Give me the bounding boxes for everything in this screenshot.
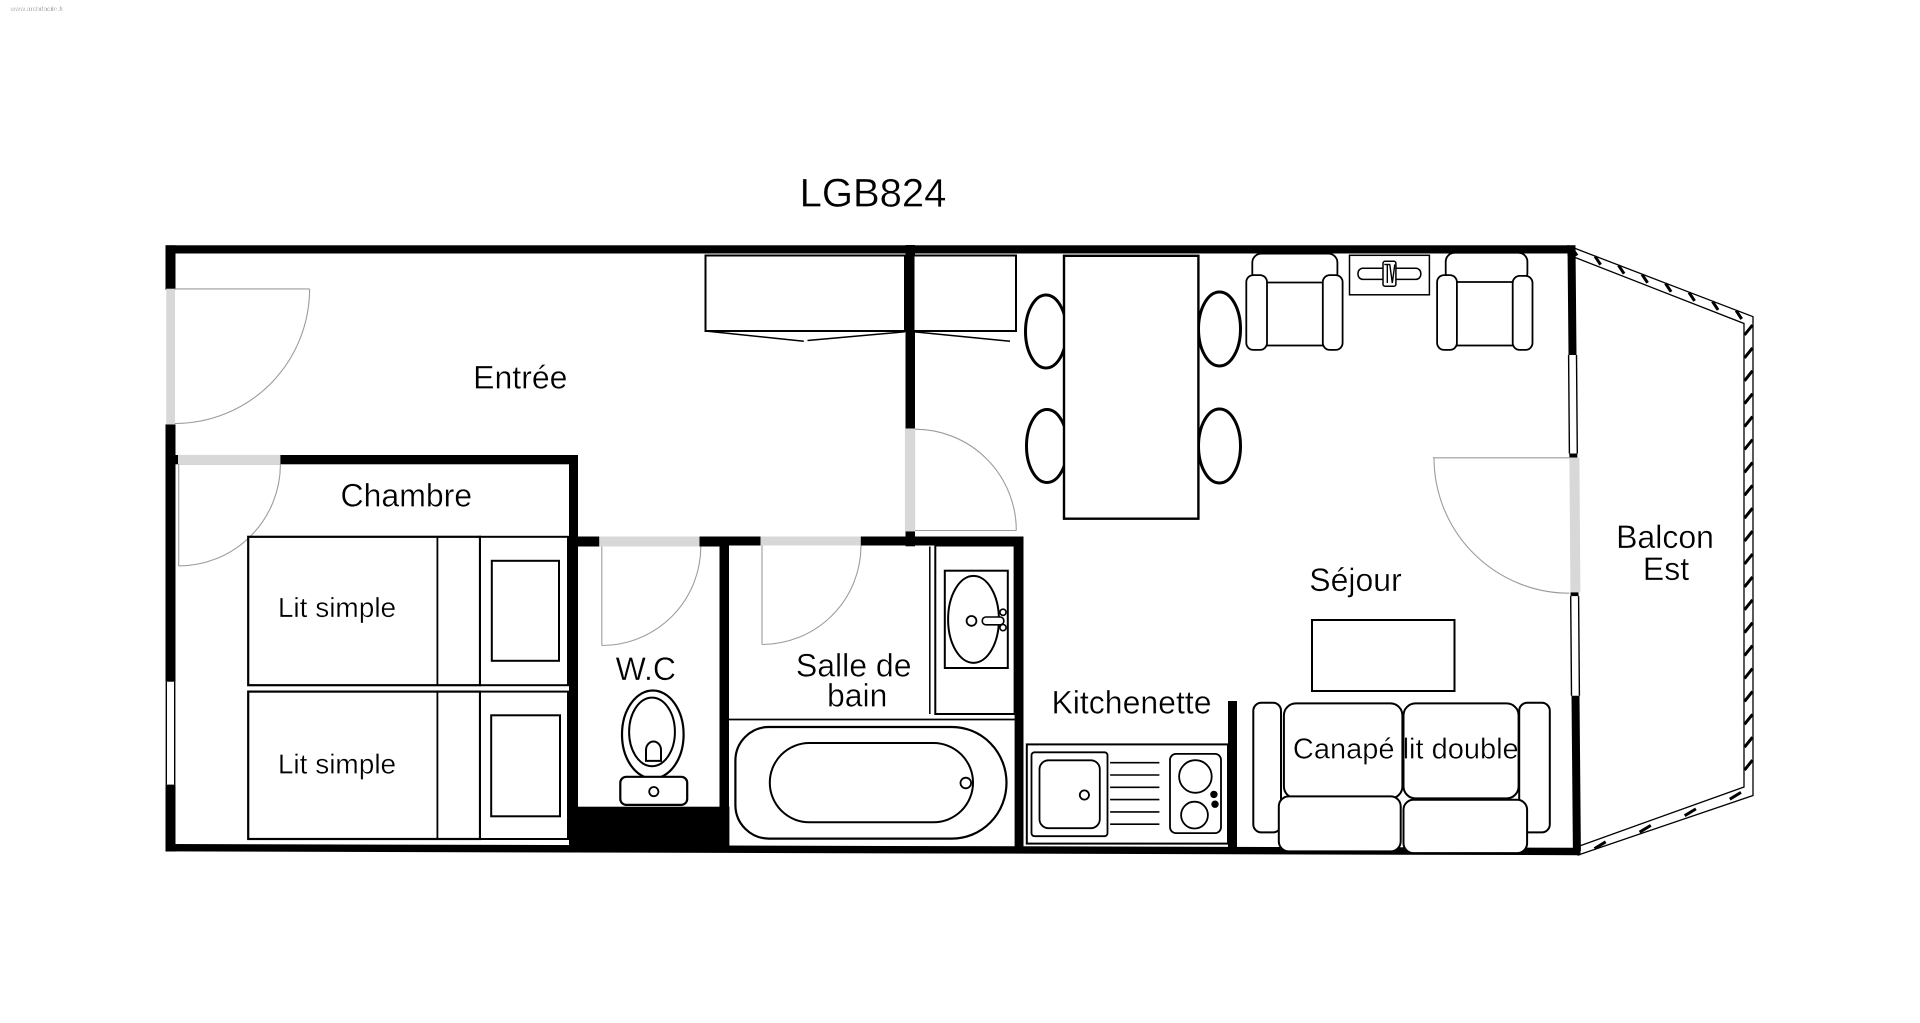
svg-text:Kitchenette: Kitchenette [1051, 685, 1211, 721]
svg-text:Chambre: Chambre [340, 478, 472, 514]
svg-text:Séjour: Séjour [1309, 562, 1402, 598]
svg-text:Lit simple: Lit simple [278, 749, 396, 780]
svg-text:Canapé lit double: Canapé lit double [1293, 734, 1519, 766]
svg-text:W.C: W.C [616, 651, 676, 687]
svg-text:www.archifacile.fr: www.archifacile.fr [10, 6, 65, 13]
svg-text:Est: Est [1643, 551, 1689, 587]
svg-text:LGB824: LGB824 [800, 172, 947, 216]
svg-text:Balcon: Balcon [1616, 519, 1714, 555]
svg-text:Entrée: Entrée [473, 359, 567, 395]
svg-text:Lit simple: Lit simple [278, 592, 396, 623]
svg-text:bain: bain [827, 678, 888, 714]
